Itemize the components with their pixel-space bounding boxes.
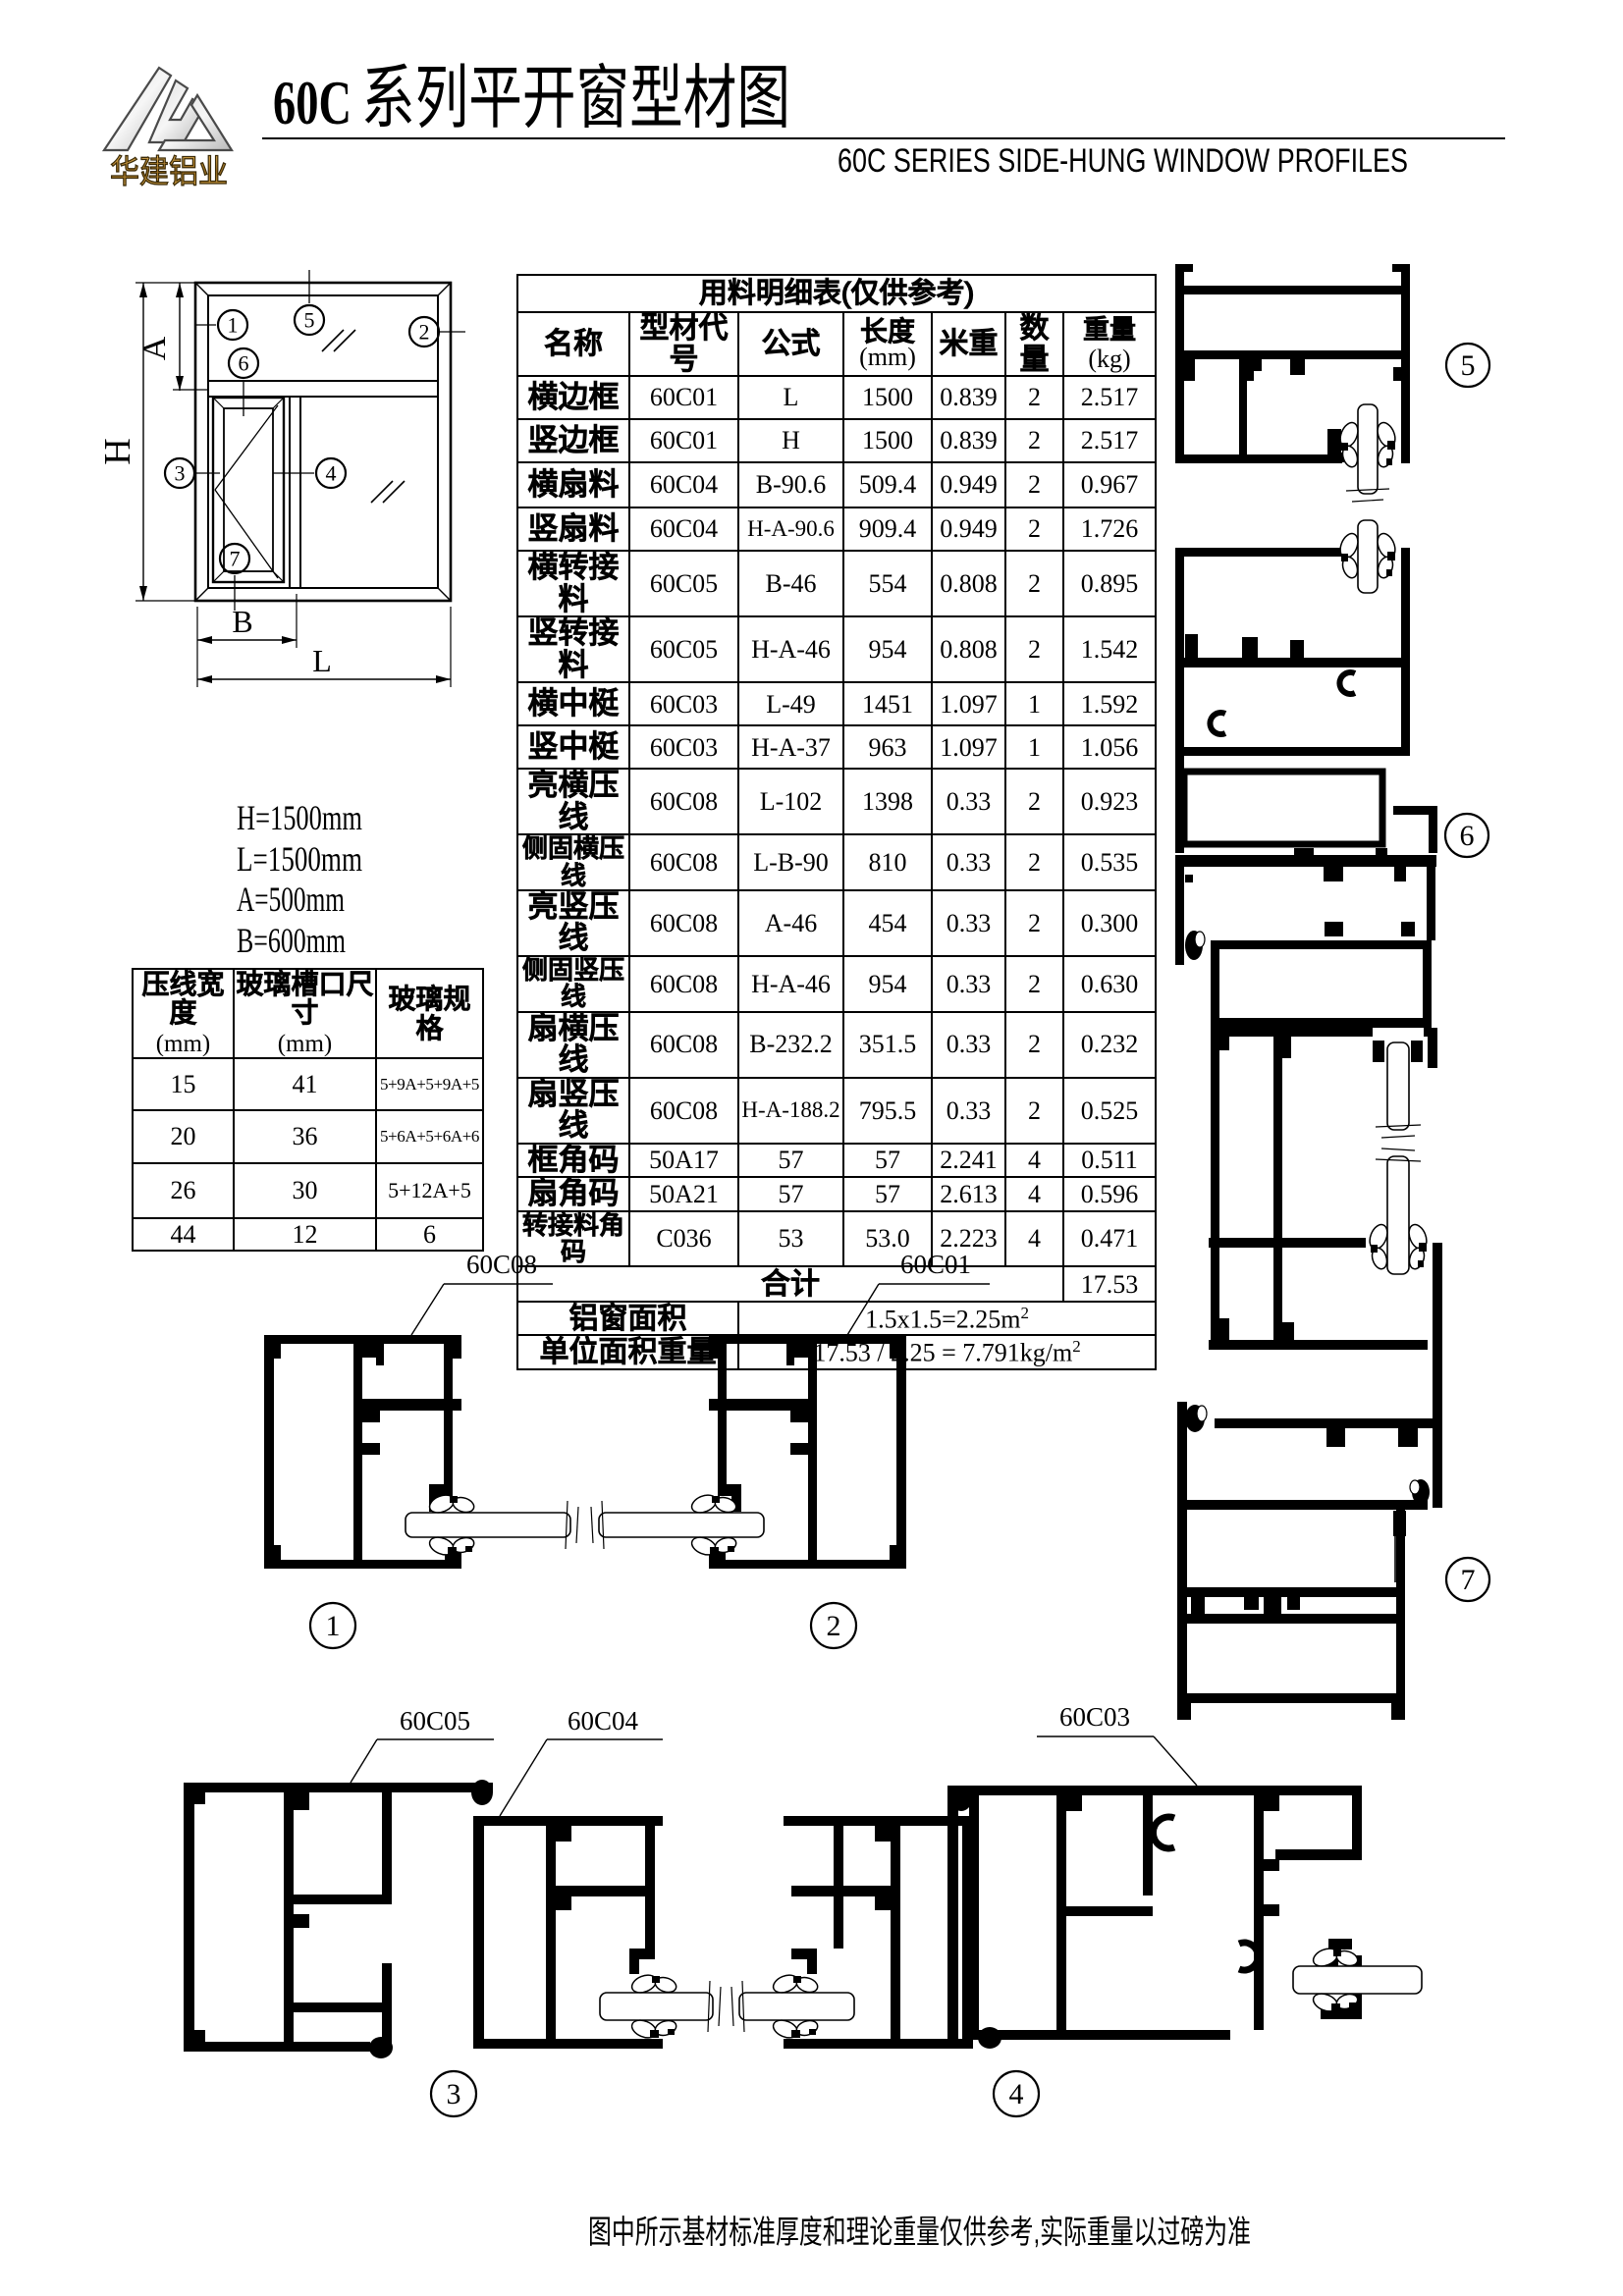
svg-text:60C01: 60C01 xyxy=(900,1250,971,1279)
svg-text:B=600mm: B=600mm xyxy=(237,921,346,960)
svg-text:5: 5 xyxy=(304,307,315,332)
svg-text:60C SERIES SIDE-HUNG WINDOW PR: 60C SERIES SIDE-HUNG WINDOW PROFILES xyxy=(838,142,1408,180)
svg-text:60C05: 60C05 xyxy=(400,1706,470,1735)
svg-text:60C03: 60C03 xyxy=(1059,1702,1130,1732)
svg-text:6: 6 xyxy=(239,350,249,375)
svg-text:7: 7 xyxy=(1461,1564,1476,1596)
svg-text:60C04: 60C04 xyxy=(568,1706,639,1735)
svg-text:图中所示基材标准厚度和理论重量仅供参考,实际重量以过磅为准: 图中所示基材标准厚度和理论重量仅供参考,实际重量以过磅为准 xyxy=(588,2214,1251,2250)
svg-text:2: 2 xyxy=(419,319,430,344)
svg-text:L=1500mm: L=1500mm xyxy=(237,839,362,879)
svg-text:4: 4 xyxy=(326,460,337,485)
svg-text:60C: 60C xyxy=(273,68,352,137)
svg-text:A: A xyxy=(136,336,173,360)
svg-text:6: 6 xyxy=(1460,820,1475,852)
svg-text:5: 5 xyxy=(1461,349,1476,382)
svg-text:L: L xyxy=(312,643,332,678)
svg-text:H=1500mm: H=1500mm xyxy=(237,798,362,837)
svg-text:2: 2 xyxy=(827,1610,841,1642)
svg-text:4: 4 xyxy=(1009,2078,1024,2110)
svg-text:7: 7 xyxy=(230,546,241,570)
svg-text:1: 1 xyxy=(228,312,239,337)
svg-text:3: 3 xyxy=(447,2078,461,2110)
svg-text:H: H xyxy=(98,438,138,464)
svg-text:1: 1 xyxy=(326,1610,341,1642)
svg-text:系列平开窗型材图: 系列平开窗型材图 xyxy=(361,60,790,137)
svg-text:3: 3 xyxy=(175,460,186,485)
svg-text:A=500mm: A=500mm xyxy=(237,880,345,919)
svg-text:60C08: 60C08 xyxy=(466,1250,537,1279)
